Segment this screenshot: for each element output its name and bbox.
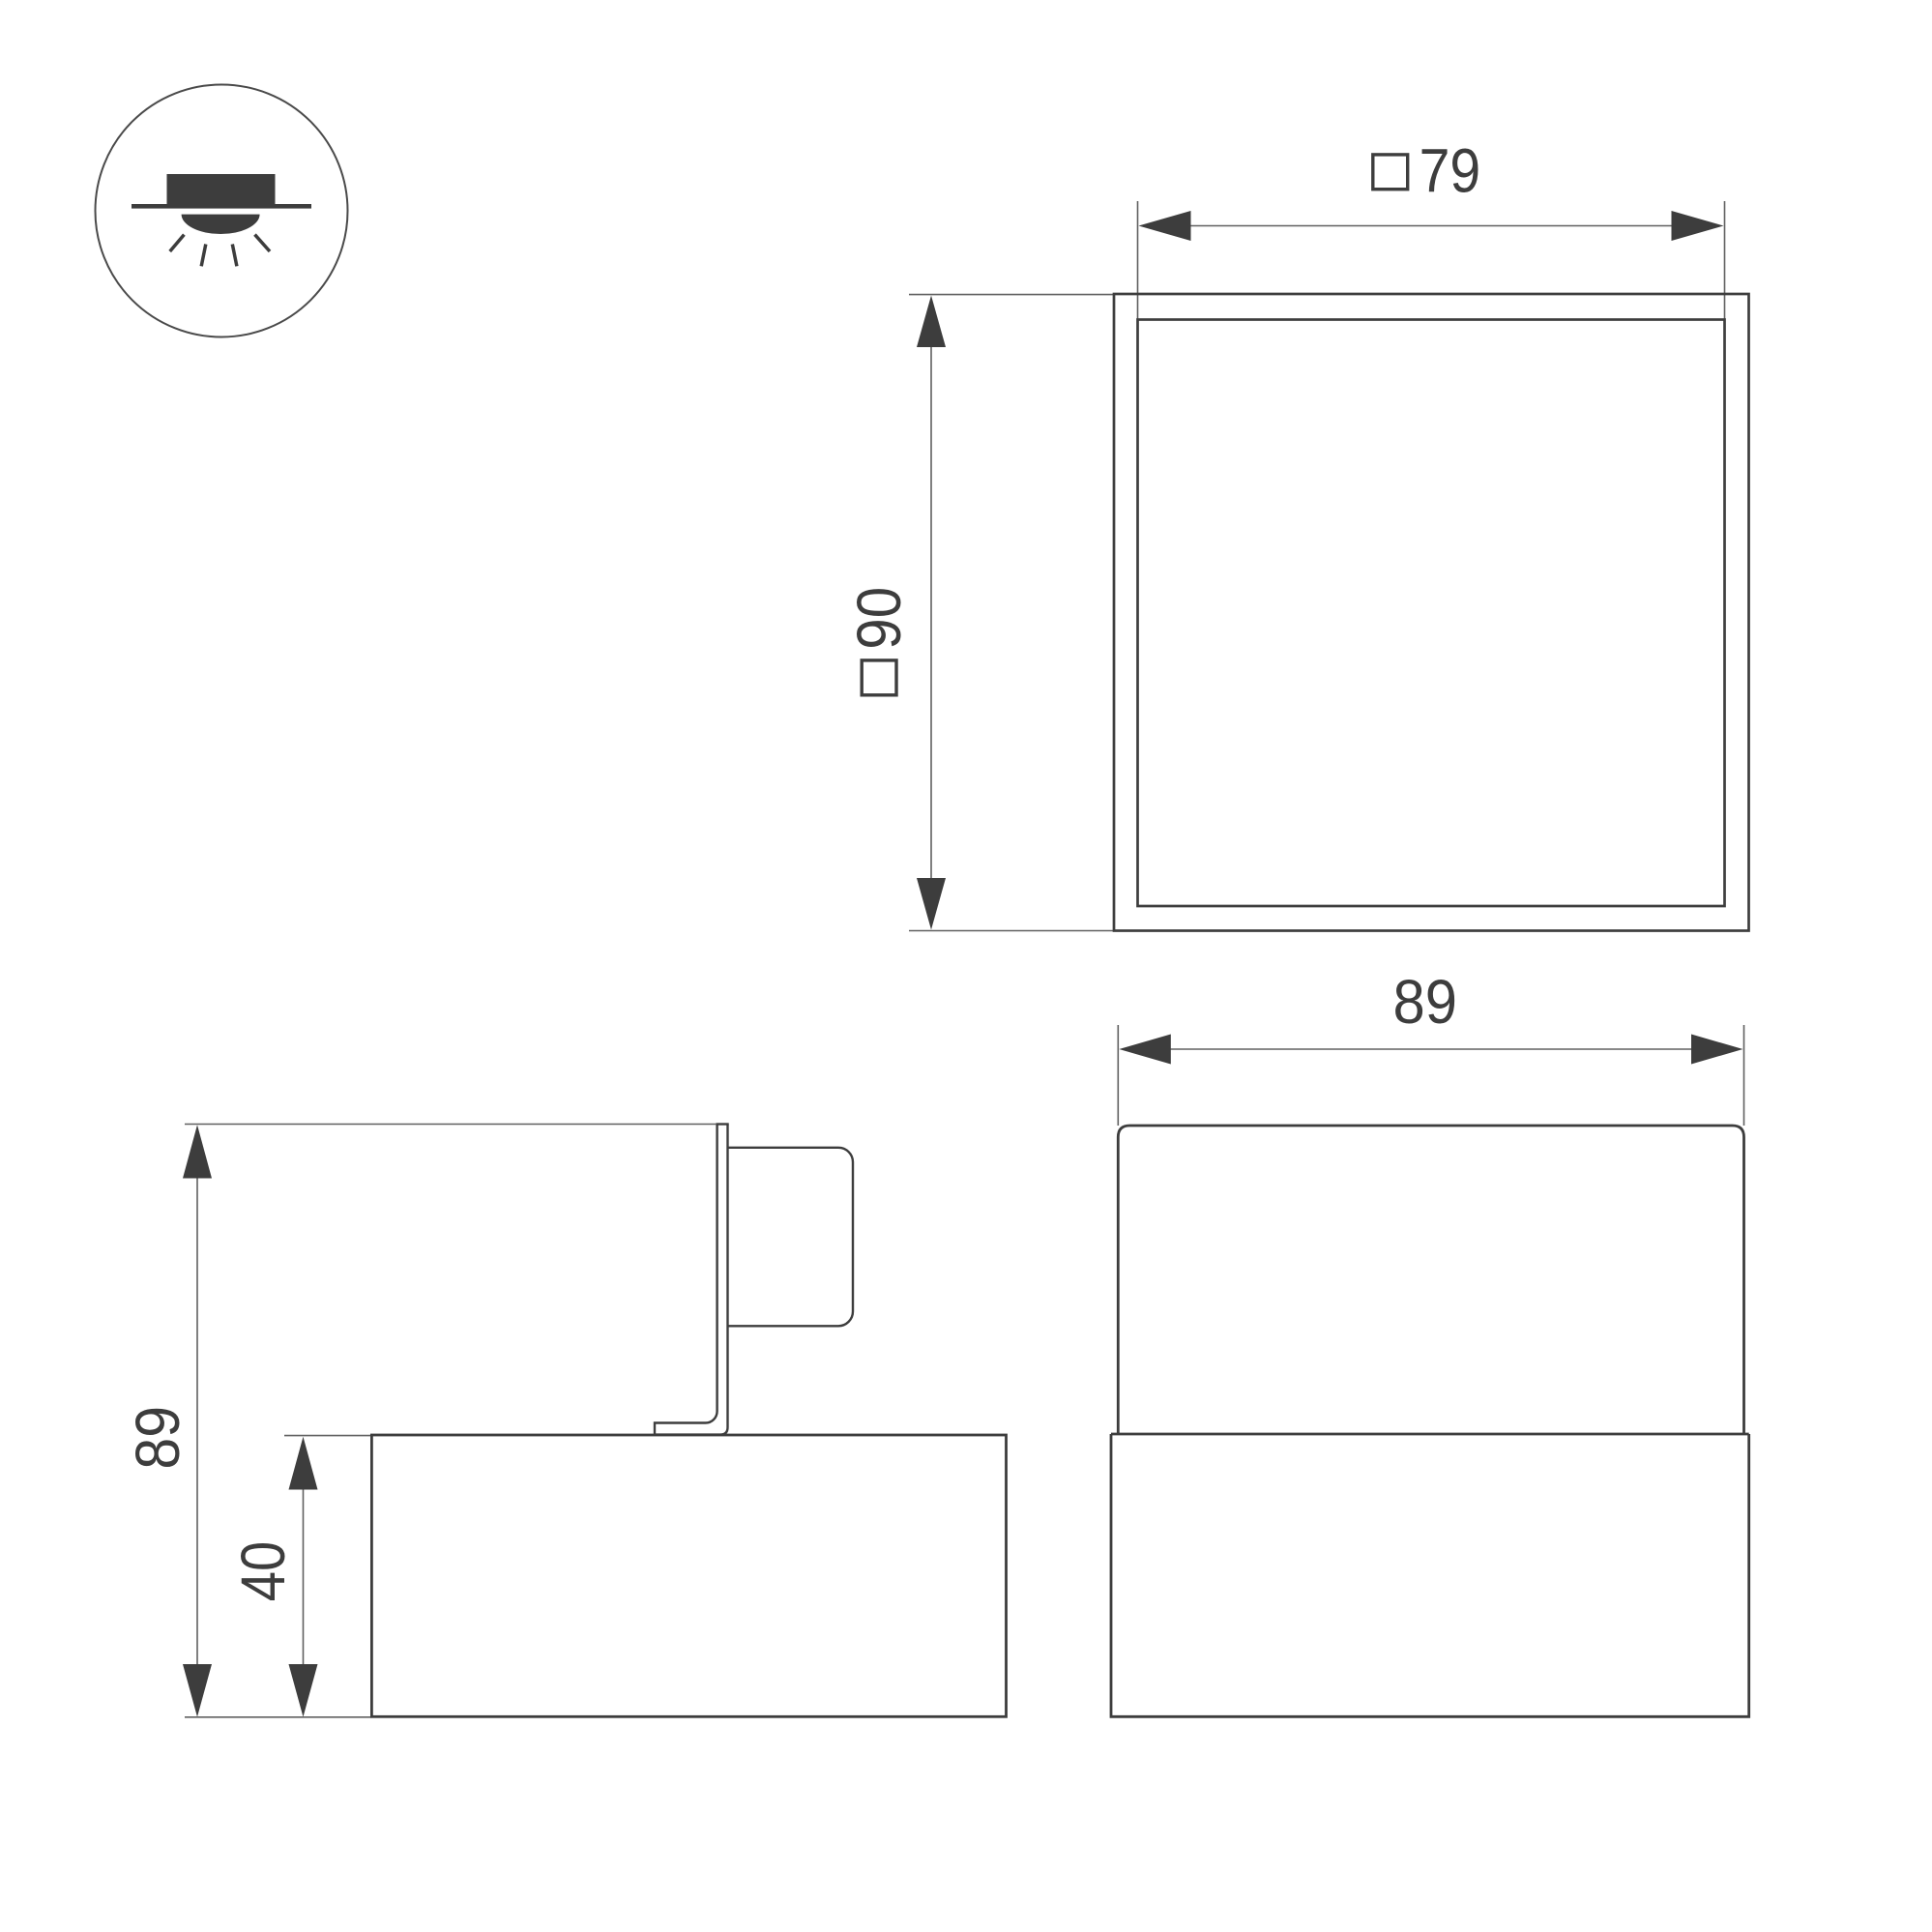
- svg-text:90: 90: [844, 587, 914, 650]
- svg-text:89: 89: [123, 1406, 192, 1470]
- svg-text:89: 89: [1393, 967, 1457, 1037]
- svg-text:40: 40: [228, 1541, 298, 1602]
- svg-text:79: 79: [1420, 136, 1481, 206]
